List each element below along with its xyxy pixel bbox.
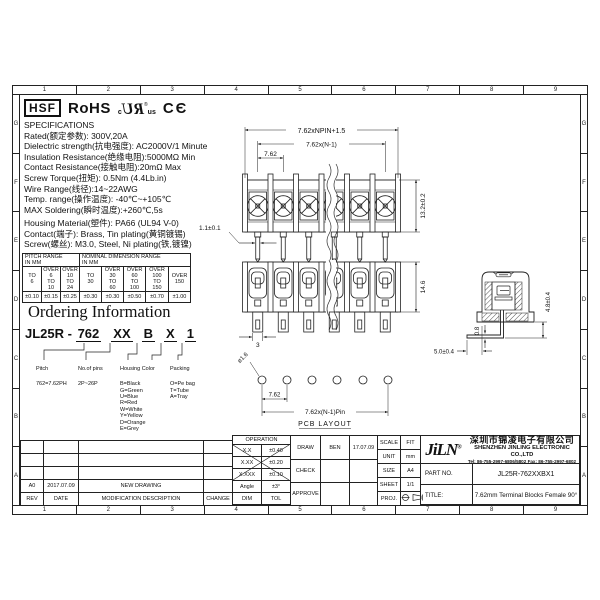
range-cell: OVER 150 [169,267,191,292]
callout-label: Packing [170,366,195,372]
signoff-name [321,483,350,506]
dim-tail-height: 4.8±0.4 [546,291,552,312]
grid-letter: E [581,212,587,271]
callout-pitch: Pitch 762=7.62PH [36,360,67,394]
pcb-layout: ø1.6 7.62 7.62x(N-1)Pin PCB LAYOUT [237,351,392,428]
info-label: SHEET [378,478,401,492]
tol-value: TOL [262,493,291,505]
tol-value: ±3° [262,481,291,493]
revision-empty-cell [44,441,79,454]
callout-label: No.of pins [78,366,103,372]
company-block: JiLN® 深圳市锦凌电子有限公司 SHENZHEN JINLING ELECT… [420,435,580,505]
grid-ruler-left: G F E D C B A [12,95,20,505]
grid-number: 9 [524,506,587,514]
tolerance-cell: ±0.30 [102,292,124,303]
grid-ruler-bottom: 1 2 3 4 5 6 7 8 9 [12,505,588,515]
callout-pins: No.of pins 2P~26P [78,360,103,394]
dim-tail-length: 5.0±0.4 [434,350,455,356]
grid-letter: F [13,154,19,213]
grid-letter: C [581,330,587,389]
ul-recognized-icon: c RU ® us [118,102,156,117]
pitch-range-header: PITCH RANGE IN MM [23,254,80,267]
ordering-code-pins: XX [111,326,132,342]
materials-block: Housing Material(塑件): PA66 (UL94 V-0) Co… [24,218,192,250]
dim-overall-width: 7.62xNPIN+1.5 [298,128,346,135]
tolerance-cell: ±0.25 [61,292,80,303]
part-no-value: JL25R-762XXBX1 [473,464,579,484]
company-name-en: SHENZHEN JINLING ELECTRONIC CO.,LTD [465,445,579,459]
material-line: Screw(螺丝): M3.0, Steel, Ni plating(铁,镀镍) [24,239,192,250]
revision-empty-cell [204,454,233,467]
range-cell: TO 6 [23,267,42,292]
signoff-date [350,460,378,483]
range-cell: OVER 6 TO 10 [42,267,61,292]
grid-letter: B [581,389,587,448]
revision-empty-cell [44,467,79,480]
tolerance-cell: ±0.50 [124,292,146,303]
ordering-code: JL25R - 762XXBX1 [25,326,196,341]
callout-housing-color: Housing Color B=Black G=Green U=Blue R=R… [120,360,155,439]
company-header: JiLN® 深圳市锦凌电子有限公司 SHENZHEN JINLING ELECT… [421,436,579,464]
revision-empty-cell [79,467,204,480]
grid-number: 1 [13,86,77,94]
grid-letter: G [13,95,19,154]
part-no-row: PART NO. JL25R-762XXBX1 [421,464,579,485]
revision-empty-cell [204,467,233,480]
spec-line: MAX Soldering(瞬时温度):+260℃,5s [24,205,207,216]
revision-table: A0 2017.07.09 NEW DRAWING REV DATE MODIF… [20,440,233,506]
revision-empty-cell [21,454,44,467]
signoff-name: BEN [321,436,350,460]
dim-hole-diameter: ø1.6 [237,351,250,364]
grid-number: 6 [332,506,396,514]
front-view: 7.62xNPIN+1.5 7.62x(N-1) 7.62 13.2±0.2 1… [199,125,427,264]
grid-letter: G [581,95,587,154]
signoff-date [350,483,378,506]
part-no-label: PART NO. [421,464,473,484]
company-names: 深圳市锦凌电子有限公司 SHENZHEN JINLING ELECTRONIC … [465,435,579,465]
spec-line: Rated(额定参数): 300V,20A [24,131,207,142]
info-value: A4 [401,464,421,478]
spec-line: Contact Resistance(接触电阻):20mΩ Max [24,162,207,173]
ordering-code-x: X [164,326,177,342]
callout-values: B=Black G=Green U=Blue R=Red W=White Y=Y… [120,381,155,432]
info-value-proj [401,492,421,506]
grid-number: 1 [13,506,77,514]
range-cell: TO 30 [80,267,102,292]
grid-letter: B [13,389,19,448]
spec-line: Temp. range(操作温度): -40℃~+105℃ [24,194,207,205]
title-row: TITLE: 7.62mm Terminal Blocks Female 90° [421,485,579,506]
material-line: Contact(端子): Brass, Tin plating(黄铜镀锡) [24,229,192,240]
dim-pin-width: 1.1±0.1 [199,225,221,232]
dim-pitch: 7.62 [264,151,277,158]
grid-number: 7 [396,506,460,514]
revision-empty-cell [44,454,79,467]
dim-pin-thickness: 0.8 [475,326,481,335]
drawing-sheet-page: 1 2 3 4 5 6 7 8 9 1 2 3 4 5 6 7 8 9 G F … [0,0,600,600]
pitch-tolerance-table: PITCH RANGE IN MM NOMINAL DIMENSION RANG… [22,253,191,303]
info-value: 1/1 [401,478,421,492]
tolerance-cell: ±1.00 [169,292,191,303]
tol-dim: Angle [233,481,262,493]
grid-number: 9 [524,86,587,94]
signoff-role: APPROVE [291,483,321,506]
revision-empty-cell [21,441,44,454]
ordering-code-prefix: JL25R - [25,326,76,341]
ordering-information-title: Ordering Information [28,302,171,322]
spec-line: Insulation Resistance(绝缘电阻):5000MΩ Min [24,152,207,163]
range-cell: OVER 60 TO 100 [124,267,146,292]
grid-letter: C [13,330,19,389]
grid-letter: E [13,212,19,271]
grid-number: 2 [77,86,141,94]
grid-number: 2 [77,506,141,514]
revision-header-date: DATE [44,493,79,506]
tolerance-cell: ±0.30 [80,292,102,303]
grid-number: 3 [141,506,205,514]
material-line: Housing Material(塑件): PA66 (UL94 V-0) [24,218,192,229]
grid-letter: D [581,271,587,330]
revision-header-rev: REV [21,493,44,506]
tolerance-cell: ±0.70 [146,292,169,303]
grid-number: 8 [460,506,524,514]
revision-empty-cell [204,441,233,454]
ce-mark: CЄ [163,101,189,117]
revision-empty-cell [79,441,204,454]
ordering-code-pitch: 762 [76,326,102,342]
grid-number: 4 [205,506,269,514]
signoff-table: DRAW BEN 17.07.09 CHECK APPROVE [290,435,378,506]
technical-drawing: 7.62xNPIN+1.5 7.62x(N-1) 7.62 13.2±0.2 1… [195,100,565,445]
side-section-view: 0.8 4.8±0.4 5.0±0.4 [434,272,552,356]
callout-values: 762=7.62PH [36,381,67,387]
ul-mark-glyph: RU [122,102,144,117]
range-cell: OVER 30 TO 60 [102,267,124,292]
grid-letter: F [581,154,587,213]
company-logo-text: JiLN [425,440,457,459]
grid-number: 4 [205,86,269,94]
grid-letter: D [13,271,19,330]
grid-number: 5 [269,506,333,514]
grid-number: 7 [396,86,460,94]
grid-ruler-top: 1 2 3 4 5 6 7 8 9 [12,85,588,95]
grid-letter: A [13,447,19,505]
revision-header-change: CHANGE [204,493,233,506]
info-label: SCALE [378,436,401,450]
dim-pcb-span: 7.62x(N-1)Pin [305,409,345,416]
top-view: 14.6 3 [239,260,427,349]
hsf-logo: HSF [24,99,61,117]
grid-number: 5 [269,86,333,94]
info-label: SIZE [378,464,401,478]
signoff-role: DRAW [291,436,321,460]
grid-ruler-right: G F E D C B A [580,95,588,505]
dim-pcb-pitch: 7.62 [269,393,281,399]
drawing-title-label: TITLE: [421,485,473,506]
revision-description: NEW DRAWING [79,480,204,493]
info-label: PROJ. [378,492,401,506]
grid-letter: A [581,447,587,505]
info-value: FIT [401,436,421,450]
callout-values: 2P~26P [78,381,103,387]
nominal-range-header: NOMINAL DIMENSION RANGE IN MM [80,254,191,267]
drawing-title-value: 7.62mm Terminal Blocks Female 90° [473,485,579,506]
rohs-logo: RoHS [68,101,111,117]
revision-empty-cell [21,467,44,480]
info-label: UNIT [378,450,401,464]
tolerance-cell: ±0.15 [42,292,61,303]
revision-date: 2017.07.09 [44,480,79,493]
callout-values: O=Pe bag T=Tube A=Tray [170,381,195,400]
dim-span: 7.62x(N-1) [306,142,337,149]
specifications-block: SPECIFICATIONS Rated(额定参数): 300V,20A Die… [24,120,207,215]
dim-pin-square: 3 [256,342,260,349]
callout-label: Pitch [36,366,67,372]
range-cell: OVER 100 TO 150 [146,267,169,292]
signoff-date: 17.07.09 [350,436,378,460]
company-logo: JiLN® [421,440,465,460]
certification-marks: HSF RoHS c RU ® us CЄ [24,97,188,117]
pcb-layout-label: PCB LAYOUT [298,421,352,428]
spec-line: Dielectric strength(抗电强度): AC2000V/1 Min… [24,141,207,152]
dim-body-height: 13.2±0.2 [420,193,427,219]
spec-line: Screw Torque(扭矩): 0.5Nm (4.4Lb.in) [24,173,207,184]
callout-label: Housing Color [120,366,155,372]
info-value: mm [401,450,421,464]
sheet-info-table: SCALEFIT UNITmm SIZEA4 SHEET1/1 PROJ. [377,435,421,506]
grid-number: 3 [141,86,205,94]
tolerance-cross-lines [232,444,290,481]
spec-line: Wire Range(线径):14~22AWG [24,184,207,195]
tol-dim: DIM [233,493,262,505]
tolerance-cell: ±0.10 [23,292,42,303]
company-name-cn: 深圳市锦凌电子有限公司 [465,435,579,445]
registered-icon: ® [457,444,460,450]
dim-depth: 14.6 [420,280,427,293]
grid-number: 6 [332,86,396,94]
revision-rev: A0 [21,480,44,493]
ul-us-label: us [148,108,156,117]
revision-change [204,480,233,493]
grid-number: 8 [460,86,524,94]
signoff-name [321,460,350,483]
ordering-code-color: B [142,326,155,342]
specifications-title: SPECIFICATIONS [24,120,207,131]
revision-header-description: MODIFICATION DESCRIPTION [79,493,204,506]
callout-packing: Packing O=Pe bag T=Tube A=Tray [170,360,195,407]
revision-empty-cell [79,454,204,467]
ordering-callout-lines [20,343,220,361]
range-cell: OVER 10 TO 24 [61,267,80,292]
signoff-role: CHECK [291,460,321,483]
